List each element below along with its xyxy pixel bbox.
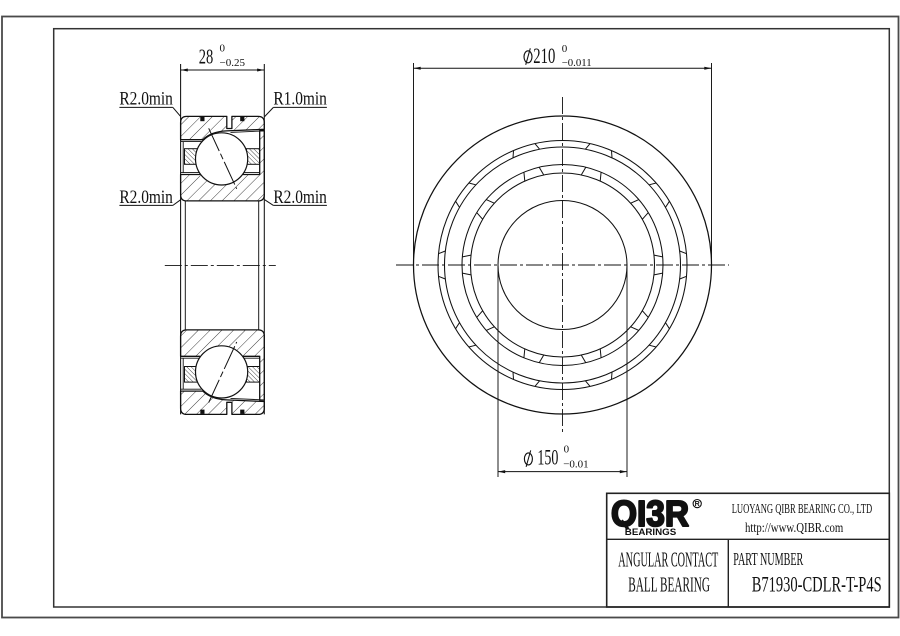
svg-text:R2.0min: R2.0min	[119, 187, 173, 208]
svg-text:0: 0	[564, 443, 570, 455]
svg-text:LUOYANG QIBR BEARING CO., LTD: LUOYANG QIBR BEARING CO., LTD	[732, 502, 873, 517]
svg-text:−0.011: −0.011	[562, 57, 592, 69]
svg-text:PART NUMBER: PART NUMBER	[733, 549, 803, 569]
svg-text:R2.0min: R2.0min	[119, 89, 173, 110]
svg-text:BEARINGS: BEARINGS	[625, 526, 676, 537]
svg-text:ANGULAR CONTACT: ANGULAR CONTACT	[618, 548, 718, 572]
svg-text:http://www.QIBR.com: http://www.QIBR.com	[745, 521, 843, 536]
svg-text:210: 210	[533, 43, 555, 68]
svg-text:−0.01: −0.01	[563, 458, 589, 470]
svg-text:0: 0	[220, 43, 226, 55]
svg-text:150: 150	[537, 444, 558, 469]
svg-text:BALL BEARING: BALL BEARING	[628, 573, 710, 597]
svg-text:R2.0min: R2.0min	[273, 187, 327, 208]
svg-text:R1.0min: R1.0min	[273, 89, 327, 110]
svg-text:R: R	[695, 501, 700, 508]
svg-text:B71930-CDLR-T-P4S: B71930-CDLR-T-P4S	[752, 572, 882, 597]
svg-text:28: 28	[199, 45, 214, 69]
svg-text:−0.25: −0.25	[220, 57, 246, 69]
svg-text:0: 0	[562, 43, 568, 55]
